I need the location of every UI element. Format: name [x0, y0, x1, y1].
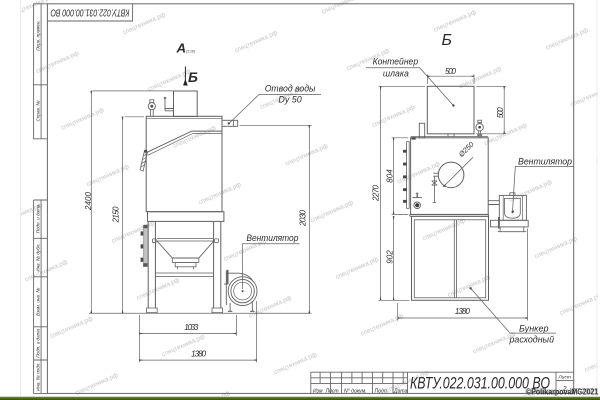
- svg-text:1380: 1380: [191, 350, 207, 359]
- svg-text:Отвод воды: Отвод воды: [265, 83, 316, 94]
- svg-text:©PolikarpovaMG2021: ©PolikarpovaMG2021: [525, 386, 598, 396]
- svg-text:2150: 2150: [112, 206, 121, 224]
- svg-text:КВТУ.022.031.00.000 ВО: КВТУ.022.031.00.000 ВО: [51, 6, 130, 18]
- svg-text:804: 804: [385, 169, 394, 183]
- svg-text:Инв. № подл.: Инв. № подл.: [35, 362, 40, 391]
- svg-text:Справ. №: Справ. №: [36, 101, 41, 122]
- svg-text:2400: 2400: [84, 191, 93, 211]
- svg-text:N° докум.: N° докум.: [344, 388, 367, 394]
- svg-text:(1:10): (1:10): [186, 50, 195, 54]
- svg-text:Вентилятор: Вентилятор: [246, 232, 298, 243]
- svg-text:500: 500: [445, 67, 457, 76]
- svg-text:Вентилятор: Вентилятор: [518, 156, 572, 167]
- svg-text:шлака: шлака: [383, 68, 409, 79]
- svg-text:Бункер: Бункер: [519, 322, 549, 333]
- svg-text:1380: 1380: [455, 307, 471, 316]
- svg-text:Изм: Изм: [313, 388, 323, 394]
- svg-text:Подп.: Подп.: [375, 388, 389, 394]
- svg-text:Лист: Лист: [558, 374, 571, 380]
- svg-text:Подп. и дата: Подп. и дата: [36, 204, 41, 233]
- svg-text:Контейнер: Контейнер: [373, 55, 419, 66]
- svg-text:2270: 2270: [372, 184, 381, 202]
- svg-text:2030: 2030: [299, 209, 308, 227]
- svg-text:расходный: расходный: [509, 333, 555, 344]
- svg-text:Dy 50: Dy 50: [278, 94, 302, 105]
- svg-text:А: А: [176, 41, 187, 56]
- svg-text:Б: Б: [188, 69, 198, 85]
- svg-text:Взам. инв. №: Взам. инв. №: [36, 288, 41, 316]
- svg-text:902: 902: [385, 250, 394, 264]
- svg-text:Подп. и дата: Подп. и дата: [36, 329, 41, 358]
- svg-text:Дата: Дата: [393, 388, 408, 394]
- svg-text:Лист: Лист: [325, 388, 339, 394]
- svg-text:Б: Б: [442, 32, 452, 49]
- svg-text:Инв. № дубл.: Инв. № дубл.: [35, 243, 40, 271]
- svg-text:500: 500: [496, 107, 505, 119]
- svg-text:Перв. примен.: Перв. примен.: [36, 20, 41, 51]
- svg-text:1033: 1033: [184, 323, 199, 332]
